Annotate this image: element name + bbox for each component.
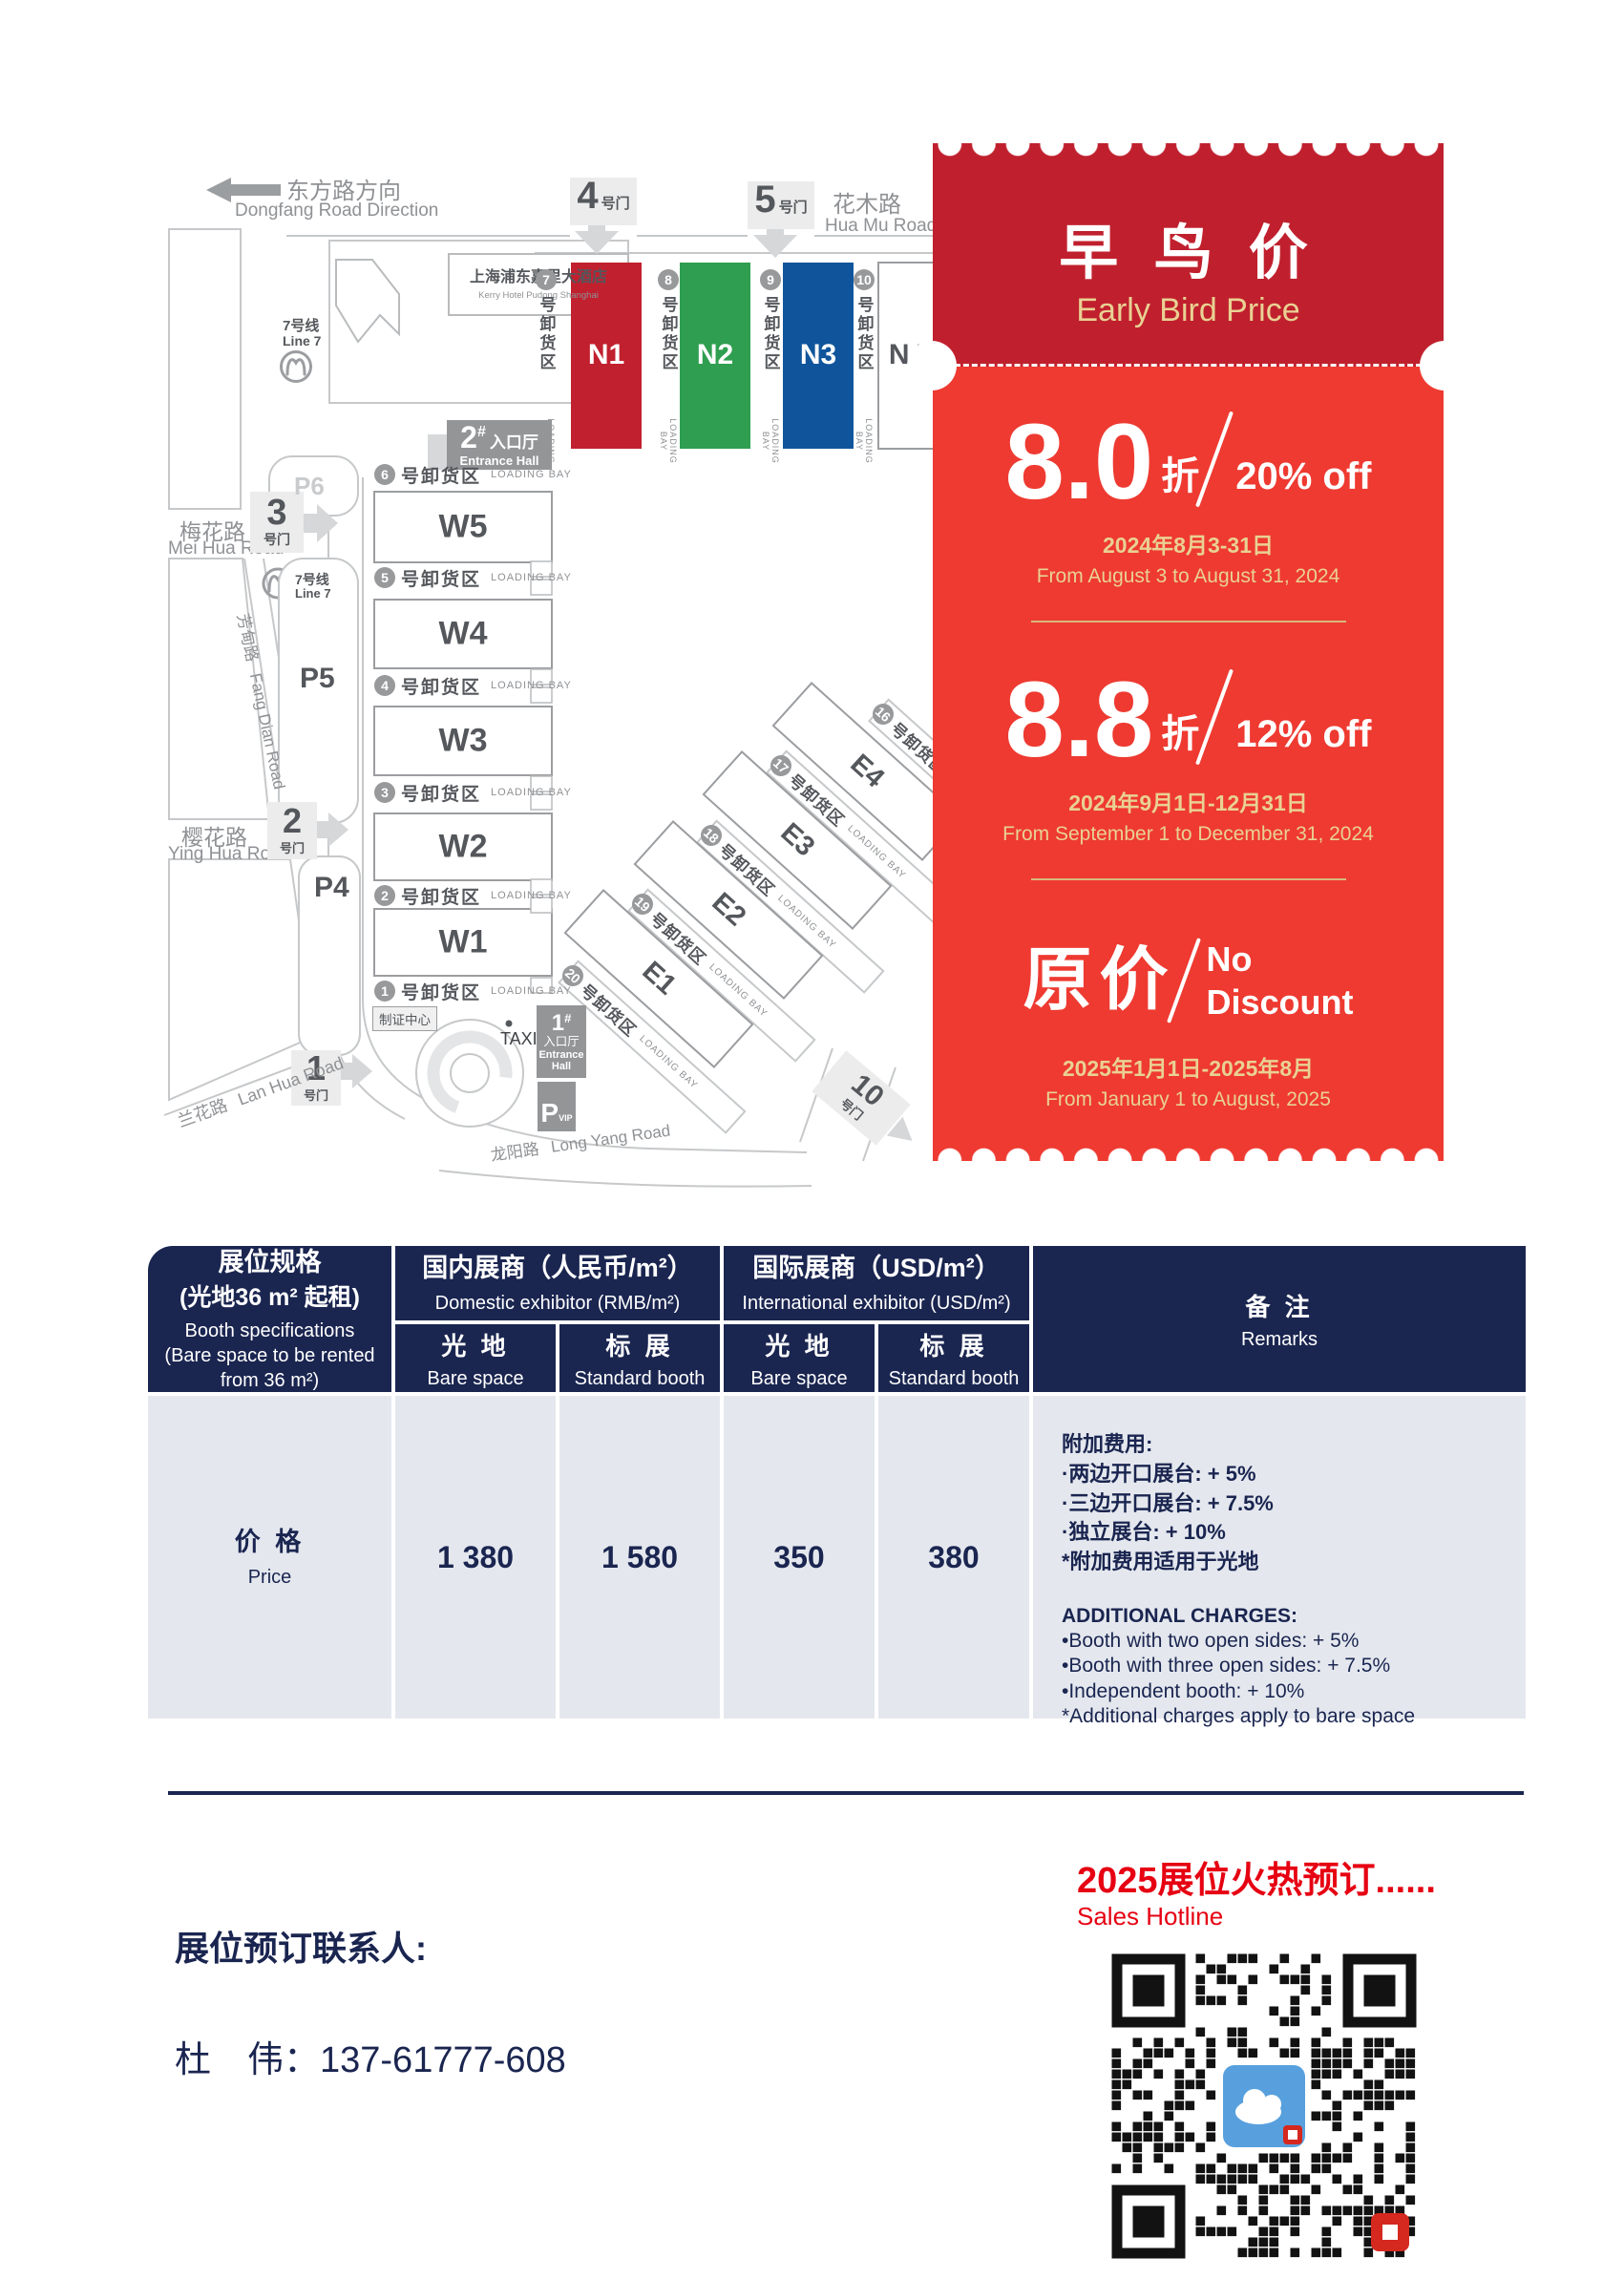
hotline-subtitle: Sales Hotline — [1077, 1902, 1223, 1931]
remarks-en-title: ADDITIONAL CHARGES: — [1062, 1604, 1297, 1629]
early-bird-coupon: 早 鸟 价 Early Bird Price 8.0 折 20% off 202… — [933, 143, 1444, 1161]
gate-4-suffix: 号门 — [601, 193, 630, 213]
price-domestic-bare: 1 380 — [395, 1396, 556, 1719]
tier2-slash — [1195, 669, 1234, 766]
original-dates-en: From January 1 to August, 2025 — [933, 1088, 1444, 1111]
metro-line7-label-en: Line 7 — [283, 333, 321, 348]
domestic-bare-en: Bare space — [427, 1368, 523, 1390]
tier2-divider — [1031, 878, 1346, 880]
entrance1-label-zh: 入口厅 — [543, 1036, 580, 1049]
hall-n1-label: N1 — [588, 339, 624, 371]
tier2-dates-zh: 2024年9月1日-12月31日 — [933, 785, 1444, 817]
remarks-en-line2: •Booth with three open sides: + 7.5% — [1062, 1654, 1390, 1678]
gate-2-number: 2 — [283, 805, 302, 837]
metro2-line7-label-en: Line 7 — [295, 586, 331, 601]
bay-5-label-zh: 号卸货区 — [401, 565, 481, 591]
loading-bay-7: 7 号卸货区 — [536, 269, 557, 409]
loading-bay-6: 6 号卸货区 LOADING BAY — [374, 463, 572, 486]
hall-n3-label: N3 — [800, 339, 836, 371]
bay-2-label-en: LOADING BAY — [491, 890, 572, 901]
remarks-body: 附加费用: ·两边开口展台: + 5% ·三边开口展台: + 7.5% ·独立展… — [1033, 1396, 1526, 1719]
original-no: No — [1207, 938, 1354, 981]
huamu-road-label-zh: 花木路 — [833, 185, 901, 219]
metro-line7-label-zh: 7号线 — [283, 315, 319, 335]
tier2-zhe: 折 — [1161, 703, 1199, 758]
loading-bay-2: 2 号卸货区 LOADING BAY — [374, 884, 572, 907]
bay-4-label-en: LOADING BAY — [491, 680, 572, 691]
intl-bare-en: Bare space — [750, 1368, 847, 1390]
bay-4-number: 4 — [374, 675, 395, 696]
gate-2: 2 号门 — [267, 802, 317, 859]
bay-10-number: 10 — [854, 269, 875, 290]
loading-bay-3: 3 号卸货区 LOADING BAY — [374, 781, 572, 804]
entrance-hall-1: 1 # 入口厅 Entrance Hall — [537, 1005, 586, 1078]
remarks-en-line4: *Additional charges apply to bare space — [1062, 1704, 1415, 1729]
original-discount: Discount — [1207, 981, 1354, 1023]
international-group-header: 国际展商（USD/m²） International exhibitor (US… — [724, 1246, 1029, 1320]
coupon-tear-line — [946, 364, 1430, 367]
bay-3-label-en: LOADING BAY — [491, 787, 572, 798]
original-dates-zh: 2025年1月1日-2025年8月 — [933, 1050, 1444, 1083]
tier2-dates-en: From September 1 to December 31, 2024 — [933, 823, 1444, 846]
gate-3-number: 3 — [266, 496, 286, 530]
hall-w1-label: W1 — [439, 924, 488, 961]
dongfang-road-label-en: Dongfang Road Direction — [235, 200, 438, 222]
tier-2: 8.8 折 12% off 2024年9月1日-12月31日 From Sept… — [933, 666, 1444, 880]
bay-5-number: 5 — [374, 567, 395, 588]
bay-2-label-zh: 号卸货区 — [401, 883, 481, 909]
spec-title-zh: 展位规格 — [219, 1245, 322, 1281]
bay-10-label-zh: 号卸货区 — [853, 296, 876, 409]
bay-3-label-zh: 号卸货区 — [401, 780, 481, 806]
tier-original: 原价 No Discount 2025年1月1日-2025年8月 From Ja… — [933, 936, 1444, 1111]
bay-2-number: 2 — [374, 885, 395, 906]
remarks-cn-line3: ·独立展台: + 10% — [1062, 1518, 1226, 1548]
international-header-zh: 国际展商（USD/m²） — [752, 1251, 1001, 1287]
hall-w3-label: W3 — [439, 723, 488, 760]
bay-8-number: 8 — [658, 269, 679, 290]
bay-1-label-en: LOADING BAY — [491, 985, 572, 997]
flyer-page: 东方路方向 Dongfang Road Direction 4 号门 5 号门 … — [0, 0, 1624, 2278]
gate-1-suffix: 号门 — [304, 1086, 328, 1104]
bay-1-label-zh: 号卸货区 — [401, 979, 481, 1004]
remarks-header-en: Remarks — [1241, 1329, 1318, 1351]
remarks-cn-line4: *附加费用适用于光地 — [1062, 1548, 1259, 1577]
parking-p5-label: P5 — [300, 663, 335, 695]
spec-en-2: (Bare space to be rented — [164, 1343, 374, 1368]
hotline-title: 2025展位火热预订...... — [1077, 1850, 1436, 1903]
coupon-notch-right — [1420, 341, 1469, 390]
badge-center-label: 制证中心 — [372, 1006, 437, 1031]
tier1-percent-off: 20% off — [1235, 455, 1371, 498]
coupon-notch-left — [907, 341, 957, 390]
tier1-zhe: 折 — [1161, 445, 1199, 500]
loading-bay-5: 5 号卸货区 LOADING BAY — [374, 566, 572, 589]
entrance2-label-zh: 入口厅 — [490, 434, 538, 453]
gate-4: 4 号门 — [570, 178, 637, 225]
domestic-bare-header: 光 地 Bare space — [395, 1324, 556, 1392]
bay-7-label-zh: 号卸货区 — [535, 296, 559, 409]
bay-6-label-en: LOADING BAY — [491, 469, 572, 480]
international-header-en: International exhibitor (USD/m²) — [742, 1291, 1010, 1316]
hall-w2-label: W2 — [439, 829, 488, 866]
coupon-header: 早 鸟 价 Early Bird Price — [933, 143, 1444, 367]
huamu-road-label-en: Hua Mu Road — [825, 216, 937, 237]
price-intl-bare: 350 — [724, 1396, 875, 1719]
bay-5-label-en: LOADING BAY — [491, 572, 572, 583]
domestic-group-header: 国内展商（人民币/m²） Domestic exhibitor (RMB/m²) — [395, 1246, 720, 1320]
bay-3-number: 3 — [374, 782, 395, 803]
entrance2-number: 2 — [460, 421, 477, 454]
price-domestic-standard: 1 580 — [559, 1396, 720, 1719]
tier2-percent-off: 12% off — [1235, 713, 1371, 756]
bay-9-label-zh: 号卸货区 — [759, 296, 783, 409]
hall-w5-label: W5 — [439, 509, 488, 546]
bay-10-label-en: LOADING BAY — [854, 410, 874, 473]
domestic-header-en: Domestic exhibitor (RMB/m²) — [435, 1291, 681, 1316]
coupon-scallop-top — [933, 143, 1444, 168]
price-intl-standard: 380 — [878, 1396, 1029, 1719]
remarks-cn-title: 附加费用: — [1062, 1430, 1152, 1460]
price-row-label: 价 格 Price — [148, 1396, 391, 1719]
col-spec-header: 展位规格 (光地36 m² 起租) Booth specifications (… — [148, 1246, 391, 1392]
taxi-label: TAXI — [500, 1029, 538, 1049]
domestic-standard-header: 标 展 Standard booth — [559, 1324, 720, 1392]
bay-9-label-en: LOADING BAY — [761, 410, 780, 473]
footer-divider — [168, 1791, 1524, 1795]
gate-5-number: 5 — [754, 181, 775, 218]
hall-w4-label: W4 — [439, 616, 488, 653]
parking-p4-label: P4 — [314, 872, 349, 904]
bay-6-number: 6 — [374, 464, 395, 485]
loading-bay-8: 8 号卸货区 — [658, 269, 679, 409]
coupon-scallop-bottom — [933, 1136, 1444, 1161]
bay-6-label-zh: 号卸货区 — [401, 462, 481, 488]
spec-en-1: Booth specifications — [185, 1319, 355, 1343]
loading-bay-4: 4 号卸货区 LOADING BAY — [374, 674, 572, 697]
price-label-zh: 价 格 — [235, 1525, 306, 1561]
price-table: 展位规格 (光地36 m² 起租) Booth specifications (… — [148, 1246, 1526, 1719]
intl-standard-header: 标 展 Standard booth — [878, 1324, 1029, 1392]
loading-bay-1: 1 号卸货区 LOADING BAY — [374, 980, 572, 1002]
gate-4-number: 4 — [577, 178, 598, 214]
remarks-header-zh: 备 注 — [1245, 1288, 1313, 1323]
parking-p6-label: P6 — [294, 472, 325, 501]
intl-bare-header: 光 地 Bare space — [724, 1324, 875, 1392]
wechat-qr-code — [1096, 1938, 1432, 2274]
bay-8-label-zh: 号卸货区 — [657, 296, 681, 409]
loading-bay-10: 10 号卸货区 — [854, 269, 875, 409]
tier1-dates-zh: 2024年8月3-31日 — [933, 527, 1444, 559]
gate-2-suffix: 号门 — [280, 838, 305, 856]
entrance1-label-en1: Entrance — [538, 1049, 583, 1061]
tier1-discount: 8.0 — [1005, 415, 1154, 510]
remarks-en-line1: •Booth with two open sides: + 5% — [1062, 1629, 1359, 1654]
vip-parking-box: P VIP — [538, 1082, 576, 1131]
domestic-header-zh: 国内展商（人民币/m²） — [422, 1251, 693, 1287]
vip-parking-vip: VIP — [559, 1114, 573, 1124]
vip-parking-p: P — [540, 1103, 559, 1124]
bay-8-label-en: LOADING BAY — [659, 410, 678, 473]
spec-sub-zh: (光地36 m² 起租) — [179, 1281, 360, 1315]
tier1-divider — [1031, 621, 1346, 623]
spec-en-3: from 36 m²) — [221, 1368, 319, 1393]
coupon-title-zh: 早 鸟 价 — [933, 204, 1444, 290]
intl-standard-en: Standard booth — [889, 1368, 1020, 1390]
gate-5: 5 号门 — [748, 181, 814, 229]
domestic-standard-zh: 标 展 — [605, 1327, 673, 1362]
original-price-zh: 原价 — [1023, 946, 1175, 1015]
bay-7-number: 7 — [536, 269, 557, 290]
domestic-standard-en: Standard booth — [575, 1368, 706, 1390]
intl-bare-zh: 光 地 — [765, 1327, 833, 1362]
contact-label: 展位预订联系人: — [175, 1921, 427, 1971]
entrance2-hash: # — [477, 424, 486, 441]
tier2-discount: 8.8 — [1005, 673, 1154, 768]
tier1-dates-en: From August 3 to August 31, 2024 — [933, 565, 1444, 588]
coupon-title-en: Early Bird Price — [933, 292, 1444, 329]
contact-phone: 杜 伟：137-61777-608 — [175, 2030, 566, 2082]
gate-3-suffix: 号门 — [264, 530, 290, 549]
entrance1-label-en2: Hall — [552, 1061, 571, 1072]
hall-n2-label: N2 — [697, 339, 733, 371]
remarks-cn-line2: ·三边开口展台: + 7.5% — [1062, 1489, 1274, 1519]
intl-standard-zh: 标 展 — [919, 1327, 987, 1362]
entrance1-number: 1 — [552, 1011, 564, 1036]
taxi-dot — [506, 1021, 513, 1027]
tier1-slash — [1195, 411, 1234, 508]
remarks-cn-line1: ·两边开口展台: + 5% — [1062, 1460, 1256, 1489]
gate-5-suffix: 号门 — [779, 197, 808, 217]
domestic-bare-zh: 光 地 — [441, 1327, 509, 1362]
loading-bay-9: 9 号卸货区 — [760, 269, 781, 409]
tier-1: 8.0 折 20% off 2024年8月3-31日 From August 3… — [933, 409, 1444, 623]
price-label-en: Price — [248, 1565, 292, 1590]
bay-9-number: 9 — [760, 269, 781, 290]
bay-1-number: 1 — [374, 981, 395, 1002]
remarks-header: 备 注 Remarks — [1033, 1246, 1526, 1392]
direction-arrow-icon — [206, 178, 281, 202]
qr-code-image — [1096, 1938, 1432, 2274]
remarks-en-line3: •Independent booth: + 10% — [1062, 1679, 1304, 1704]
entrance1-hash: # — [564, 1012, 571, 1025]
bay-4-label-zh: 号卸货区 — [401, 673, 481, 699]
